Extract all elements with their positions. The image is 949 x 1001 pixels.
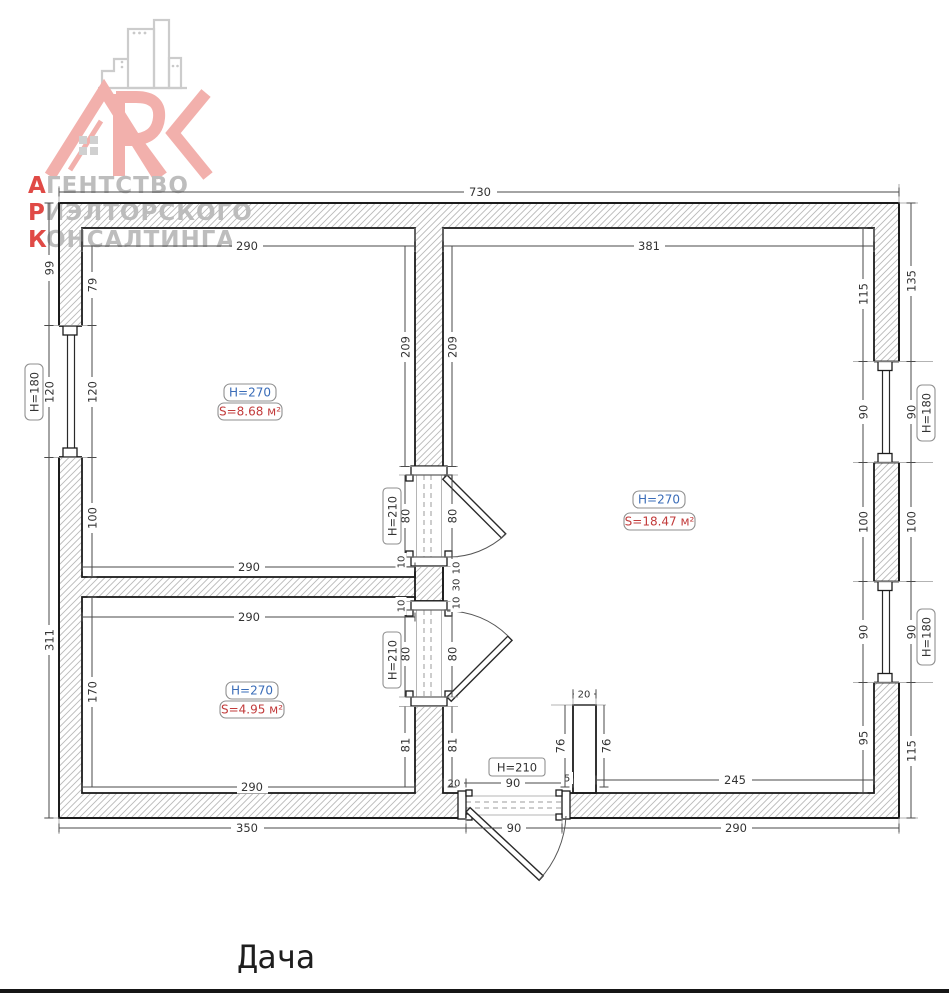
svg-text:120: 120 <box>42 381 56 403</box>
word1-rest: ГЕНТСТВО <box>46 173 189 199</box>
svg-text:20: 20 <box>448 779 461 790</box>
svg-text:730: 730 <box>469 185 491 199</box>
svg-text:290: 290 <box>236 239 258 253</box>
dim-room1-width-bottom: 290 <box>82 560 415 574</box>
floorplan-page: А ГЕНТСТВО Р ИЭЛТОРСКОГО К ОНСАЛТИНГА <box>0 0 949 1001</box>
svg-text:90: 90 <box>507 821 522 835</box>
dim-left-in-79: 79 <box>85 246 99 326</box>
svg-text:H=210: H=210 <box>385 640 399 680</box>
svg-text:290: 290 <box>725 821 747 835</box>
svg-text:115: 115 <box>856 283 870 305</box>
dim-right-inner: 115 90 100 90 95 <box>856 228 870 793</box>
dim-room3-height: 170 <box>85 597 99 787</box>
label-door1: H=210 <box>383 488 401 544</box>
room3-height: H=270 <box>231 684 273 698</box>
svg-text:30: 30 <box>452 579 463 592</box>
room1-height: H=270 <box>229 386 271 400</box>
plan-title: Дача <box>238 938 315 976</box>
floorplan-drawing: А ГЕНТСТВО Р ИЭЛТОРСКОГО К ОНСАЛТИНГА <box>0 0 949 1001</box>
dim-bottom-inner-right: 245 <box>596 773 874 787</box>
bigroom-labels: H=270 S=18.47 м² <box>624 491 695 530</box>
svg-text:H=180: H=180 <box>919 393 933 433</box>
label-window-right-upper: H=180 <box>917 385 935 441</box>
svg-text:100: 100 <box>904 511 918 533</box>
svg-text:80: 80 <box>445 509 459 524</box>
dim-room3-width-bottom: 290 <box>82 780 415 794</box>
svg-text:170: 170 <box>85 681 99 703</box>
svg-text:120: 120 <box>85 381 99 403</box>
word2-initial: Р <box>28 200 46 226</box>
svg-text:10: 10 <box>397 600 408 613</box>
bigroom-outline <box>443 228 874 793</box>
svg-text:245: 245 <box>724 773 746 787</box>
svg-text:209: 209 <box>445 336 459 358</box>
svg-text:290: 290 <box>238 560 260 574</box>
dim-left-in-100: 100 <box>85 458 99 578</box>
svg-text:90: 90 <box>506 776 521 790</box>
dim-partition-209-right: 209 <box>445 246 459 467</box>
stub-wall <box>573 705 596 793</box>
dim-stub-width: 20 <box>573 688 596 701</box>
label-door2: H=210 <box>383 632 401 688</box>
svg-text:10: 10 <box>397 556 408 569</box>
room1-labels: H=270 S=8.68 м² <box>218 384 282 420</box>
svg-text:135: 135 <box>904 270 918 292</box>
dim-room3-width-top: 290 <box>82 610 415 624</box>
bigroom-area: S=18.47 м² <box>625 515 695 529</box>
wall-openings <box>57 326 902 820</box>
label-entrance-door: H=210 <box>489 758 545 776</box>
svg-text:79: 79 <box>85 278 99 293</box>
room3-area: S=4.95 м² <box>221 703 283 717</box>
svg-text:H=210: H=210 <box>385 496 399 536</box>
dim-right-outer: 135 90 100 90 115 <box>904 203 918 818</box>
svg-text:90: 90 <box>856 405 870 420</box>
label-window-right-lower: H=180 <box>917 609 935 665</box>
dim-left-out-120: 120 <box>42 326 56 458</box>
svg-text:10: 10 <box>452 562 463 575</box>
svg-text:81: 81 <box>445 738 459 753</box>
svg-text:20: 20 <box>578 690 591 701</box>
svg-text:81: 81 <box>398 738 412 753</box>
svg-text:350: 350 <box>236 821 258 835</box>
svg-text:95: 95 <box>856 731 870 746</box>
dim-bottom-290: 290 <box>562 821 899 835</box>
svg-text:90: 90 <box>904 625 918 640</box>
room1-area: S=8.68 м² <box>219 405 281 419</box>
footer-rule <box>0 989 949 993</box>
word1-initial: А <box>28 173 47 199</box>
dim-entrance-width-inner: 90 <box>466 776 562 790</box>
svg-text:115: 115 <box>904 740 918 762</box>
svg-text:100: 100 <box>85 507 99 529</box>
bigroom-height: H=270 <box>638 493 680 507</box>
svg-text:10: 10 <box>452 597 463 610</box>
dim-left-out-311: 311 <box>42 458 56 819</box>
dim-entrance-gap-right: 5 <box>561 772 573 788</box>
svg-text:290: 290 <box>238 610 260 624</box>
svg-text:381: 381 <box>638 239 660 253</box>
word3-initial: К <box>28 227 48 253</box>
svg-text:90: 90 <box>856 625 870 640</box>
svg-text:80: 80 <box>445 647 459 662</box>
buildings-icon <box>98 20 187 88</box>
dim-bottom-350: 350 <box>59 821 466 835</box>
dim-partition-209-left: 209 <box>398 246 412 467</box>
room3-labels: H=270 S=4.95 м² <box>220 682 284 718</box>
svg-text:209: 209 <box>398 336 412 358</box>
svg-text:H=210: H=210 <box>497 760 537 774</box>
svg-text:311: 311 <box>42 629 56 651</box>
extension-lines <box>44 184 933 834</box>
svg-text:290: 290 <box>241 780 263 794</box>
label-window-left: H=180 <box>25 364 43 420</box>
svg-text:76: 76 <box>599 739 613 754</box>
svg-text:76: 76 <box>553 739 567 754</box>
ark-letters <box>50 90 208 176</box>
dim-left-in-120: 120 <box>85 326 99 458</box>
svg-text:99: 99 <box>42 261 56 276</box>
svg-text:100: 100 <box>856 511 870 533</box>
svg-text:H=180: H=180 <box>919 617 933 657</box>
dim-bigroom-width: 381 <box>443 239 874 253</box>
svg-text:H=180: H=180 <box>27 372 41 412</box>
svg-text:90: 90 <box>904 405 918 420</box>
dim-entrance-gap-left: 20 <box>443 777 466 790</box>
